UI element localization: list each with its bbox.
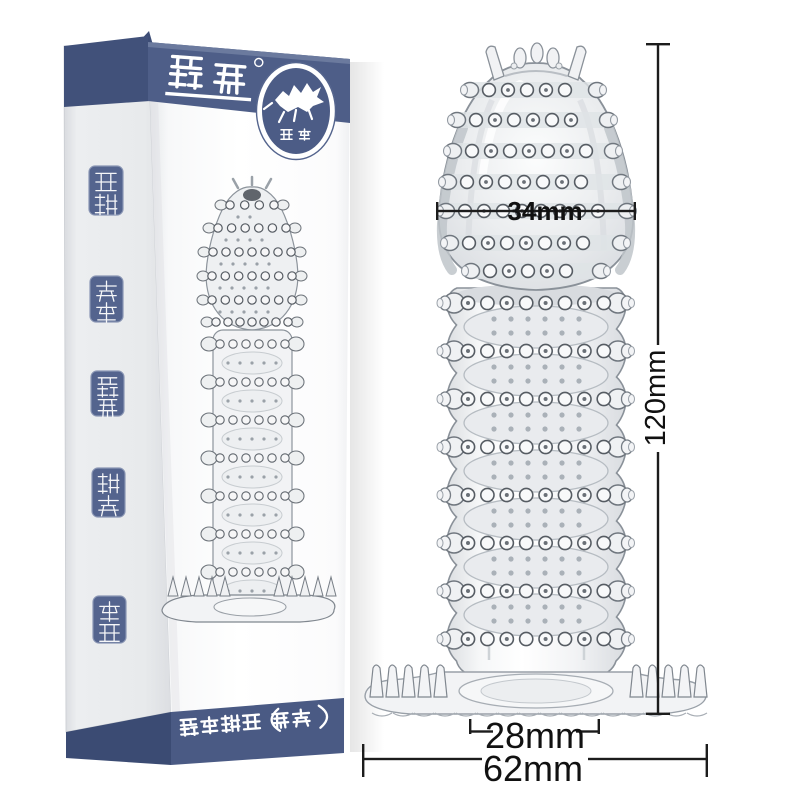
svg-text:62mm: 62mm bbox=[483, 748, 583, 789]
svg-text:34mm: 34mm bbox=[507, 196, 582, 226]
svg-text:120mm: 120mm bbox=[640, 350, 672, 447]
